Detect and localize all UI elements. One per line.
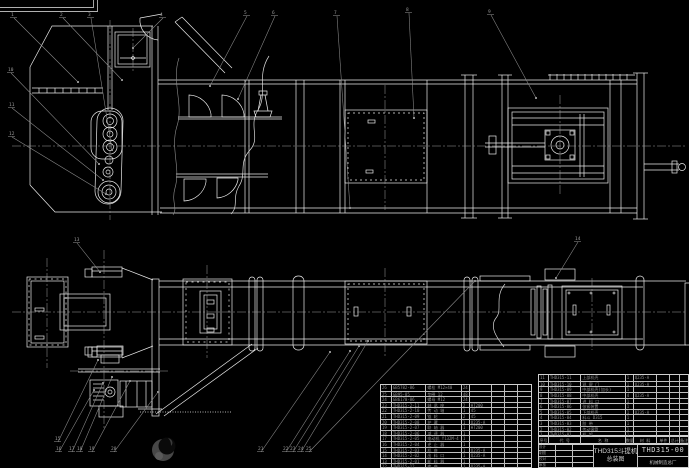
- bom-cell: 1: [462, 420, 470, 425]
- leader-line: [337, 16, 350, 208]
- leader-line: [409, 13, 414, 118]
- leader-line: [114, 392, 158, 452]
- bom-row: 12THD315-12底 座1Q235-A: [381, 463, 531, 468]
- bom-cell: 上部机壳: [581, 375, 625, 381]
- bom-cell: THD315-02: [549, 427, 582, 432]
- bom-cell: 1: [626, 415, 634, 420]
- bom-cell: THD315-07: [549, 399, 582, 404]
- bom-cell: [634, 427, 658, 432]
- bom-row: 22THD315-2-10传 动 轴145: [381, 407, 531, 413]
- bom-cell: [518, 436, 531, 441]
- bom-cell: [680, 415, 688, 420]
- bom-cell: 传 动 轴: [426, 408, 462, 413]
- bom-cell: 1: [462, 442, 470, 447]
- bom-row: 3THD315-03胶 带1: [539, 420, 688, 426]
- bom-cell: [670, 410, 680, 415]
- balloon-number: 25: [306, 446, 312, 452]
- bom-cell: [634, 387, 658, 392]
- bom-cell: [670, 399, 680, 404]
- sign-cell: 审核: [539, 463, 556, 468]
- centerlines: [12, 20, 686, 428]
- bom-cell: 逆 止 器: [426, 442, 462, 447]
- bom-cell: 1: [462, 425, 470, 430]
- bom-cell: 2: [462, 403, 470, 408]
- bom-cell: [505, 453, 518, 458]
- leader-line: [238, 16, 275, 99]
- bom-cell: 卸 料 器: [426, 459, 462, 464]
- bom-cell: [657, 382, 670, 387]
- bom-cell: [518, 453, 531, 458]
- bom-cell: [670, 415, 680, 420]
- bom-cell: 链 轮: [426, 414, 462, 419]
- bom-cell: [505, 431, 518, 436]
- bom-cell: [505, 420, 518, 425]
- bom-cell: [670, 404, 680, 409]
- bom-cell: THD315-2-10: [392, 408, 427, 413]
- bom-cell: 出 料 口: [426, 453, 462, 458]
- bom-cell: [492, 397, 506, 402]
- bom-cell: 19: [381, 425, 392, 430]
- leader-dot: [102, 382, 104, 384]
- bom-cell: [505, 425, 518, 430]
- bom-cell: GB5782-86: [392, 385, 427, 391]
- bom-cell: [492, 425, 506, 430]
- bom-cell: GB6170-86: [392, 397, 427, 402]
- bom-cell: [492, 459, 506, 464]
- bom-cell: 25: [381, 392, 392, 397]
- title-block: 设计制图校对审核 THD315斗提机 总装图 THD315-00 机械制造总厂: [538, 444, 689, 468]
- bom-cell: 2: [539, 427, 549, 432]
- bom-cell: [492, 431, 506, 436]
- balloon-number: 1: [11, 12, 14, 18]
- bom-cell: [518, 408, 531, 413]
- bom-cell: 2: [462, 414, 470, 419]
- leader-dot: [329, 351, 331, 353]
- bom-cell: Q235-A: [470, 453, 492, 458]
- leader-dot: [97, 359, 99, 361]
- bom-cell: 胶 带: [581, 421, 625, 426]
- bom-cell: 1: [626, 387, 634, 392]
- leader-line: [11, 73, 99, 164]
- balloon-number: 16: [56, 446, 62, 452]
- bom-cell: 1: [462, 464, 470, 468]
- bom-cell: [634, 421, 658, 426]
- leader-line: [12, 108, 103, 180]
- sign-cell: [556, 463, 573, 468]
- leader-dot: [349, 207, 351, 209]
- bom-cell: THD315-05: [549, 410, 582, 415]
- bom-row: 20THD315-2-08护 罩1Q235-A: [381, 419, 531, 425]
- bom-cell: THD315-03: [549, 421, 582, 426]
- bom-cell: [657, 399, 670, 404]
- bom-cell: 1: [462, 459, 470, 464]
- balloon-number: 18: [77, 446, 83, 452]
- bom-cell: GB95-85: [392, 392, 427, 397]
- bom-cell: [470, 392, 492, 397]
- bom-cell: THD315-2-01: [392, 459, 427, 464]
- bom-cell: [518, 403, 531, 408]
- leader-dot: [99, 271, 101, 273]
- cad-drawing-page: 1234567891011121314151617181920212223242…: [0, 0, 689, 468]
- bom-row: 10THD315-10观 察 门1Q235-A: [539, 381, 688, 387]
- bom-cell: 传动滚筒: [581, 427, 625, 432]
- bom-cell: Q235-A: [634, 382, 658, 387]
- balloon-number: 17: [69, 446, 75, 452]
- bom-cell: 减 速 器: [426, 431, 462, 436]
- bom-cell: 螺栓 M12×40: [426, 385, 462, 391]
- bom-cell: 16: [381, 442, 392, 447]
- leader-dot: [474, 280, 476, 282]
- bom-cell: 23: [381, 403, 392, 408]
- bom-cell: THD315-06: [549, 404, 582, 409]
- bom-row: 21THD315-2-09链 轮245: [381, 413, 531, 419]
- bom-cell: [505, 385, 518, 391]
- bom-cell: HT200: [470, 425, 492, 430]
- bom-cell: [505, 414, 518, 419]
- bom-cell: 15: [381, 448, 392, 453]
- bom-cell: 7: [539, 399, 549, 404]
- bom-cell: 18: [381, 431, 392, 436]
- bom-cell: THD315-2-03: [392, 448, 427, 453]
- bom-row: 6THD315-06张紧装置1: [539, 403, 688, 409]
- bom-cell: [492, 464, 506, 468]
- bom-cell: [492, 392, 506, 397]
- drawing-number: THD315-00: [638, 445, 688, 457]
- bom-cell: 料斗 D315: [581, 415, 625, 420]
- leader-dot: [535, 97, 537, 99]
- bom-cell: 10: [539, 382, 549, 387]
- bom-cell: 20: [381, 420, 392, 425]
- bom-cell: 螺母 M12: [426, 397, 462, 402]
- side-hatch: [345, 110, 427, 183]
- bom-cell: [518, 392, 531, 397]
- bom-cell: [470, 431, 492, 436]
- bom-cell: 14: [381, 453, 392, 458]
- bom-cell: 观 察 门: [581, 382, 625, 387]
- bom-cell: [505, 392, 518, 397]
- side-view: [0, 0, 686, 219]
- bom-cell: [492, 414, 506, 419]
- balloon-number: 10: [8, 67, 14, 73]
- leader-dot: [413, 117, 415, 119]
- leader-dot: [349, 350, 351, 352]
- bom-row: 19THD315-2-07联 轴 器1HT200: [381, 424, 531, 430]
- balloon-number: 4: [160, 12, 163, 18]
- leader-line: [77, 243, 100, 272]
- bom-cell: 3: [539, 421, 549, 426]
- bom-cell: [470, 397, 492, 402]
- bom-cell: THD315-2-07: [392, 425, 427, 430]
- bom-table-left: 26GB5782-86螺栓 M12×402425GB95-85垫圈 124824…: [380, 384, 532, 468]
- bom-cell: 12: [381, 464, 392, 468]
- plan-bellows: [480, 269, 575, 357]
- bom-cell: 24: [462, 385, 470, 391]
- bom-cell: [657, 410, 670, 415]
- leader-line: [14, 18, 78, 82]
- balloon-number: 5: [244, 10, 247, 16]
- balloon-number: 13: [74, 237, 80, 243]
- bom-cell: 进 料 口: [581, 399, 625, 404]
- bom-row: 17THD315-2-05电动机 Y132M-41: [381, 435, 531, 441]
- bom-cell: THD315-09: [549, 387, 582, 392]
- product-title: THD315斗提机: [594, 448, 637, 456]
- bom-cell: Q235-A: [470, 420, 492, 425]
- leader-line: [12, 137, 106, 194]
- bom-cell: 1: [462, 453, 470, 458]
- bom-cell: Q235-A: [634, 375, 658, 381]
- leader-line: [293, 346, 359, 452]
- bom-cell: 11: [539, 375, 549, 381]
- bom-cell: 轴 承 座: [426, 403, 462, 408]
- sheet-name: 总装图: [606, 456, 624, 464]
- bom-cell: 下部机壳: [581, 410, 625, 415]
- leader-dot: [237, 98, 239, 100]
- bom-row: 11THD315-11上部机壳1Q235-A: [539, 375, 688, 381]
- balloon-number: 22: [283, 446, 289, 452]
- bom-cell: 电动机 Y132M-4: [426, 436, 462, 441]
- bom-cell: [657, 393, 670, 398]
- balloon-number: 6: [272, 10, 275, 16]
- bom-cell: [492, 448, 506, 453]
- balloon-number: 7: [334, 10, 337, 16]
- bom-cell: THD315-12: [392, 464, 427, 468]
- bom-cell: 1: [626, 399, 634, 404]
- bom-cell: 1: [462, 408, 470, 413]
- inspection-door: [115, 32, 150, 67]
- bom-cell: 中部机壳(加长): [581, 387, 625, 392]
- signature-grid: 设计制图校对审核: [539, 445, 594, 467]
- bom-row: 9THD315-09中部机壳(加长)1: [539, 386, 688, 392]
- leader-line: [301, 341, 368, 452]
- bom-cell: Q235-A: [470, 448, 492, 453]
- bom-cell: 机 座: [426, 448, 462, 453]
- bom-cell: THD315-10: [549, 382, 582, 387]
- bom-cell: [670, 421, 680, 426]
- bom-cell: Q235-A: [634, 393, 658, 398]
- bom-cell: [505, 436, 518, 441]
- bom-cell: 垫圈 12: [426, 392, 462, 397]
- bom-cell: THD315-2-02: [392, 453, 427, 458]
- bom-cell: [470, 385, 492, 391]
- bom-cell: 5: [539, 410, 549, 415]
- bom-cell: THD315-2-11: [392, 403, 427, 408]
- bom-cell: 1: [462, 431, 470, 436]
- bom-cell: [518, 431, 531, 436]
- balloon-number: 8: [406, 7, 409, 13]
- bom-cell: [680, 421, 688, 426]
- bom-cell: 24: [381, 397, 392, 402]
- leader-dot: [93, 389, 95, 391]
- bom-cell: [518, 459, 531, 464]
- balloon-number: 19: [89, 446, 95, 452]
- bom-row: 18THD315-2-06减 速 器1: [381, 430, 531, 436]
- bom-cell: [518, 442, 531, 447]
- bom-cell: 24: [462, 397, 470, 402]
- bom-cell: 1: [626, 427, 634, 432]
- bom-cell: HT200: [470, 403, 492, 408]
- bom-cell: [680, 387, 688, 392]
- bom-cell: [505, 448, 518, 453]
- leader-dot: [157, 391, 159, 393]
- bom-row: 5THD315-05下部机壳1Q235-A: [539, 409, 688, 415]
- bom-cell: [680, 410, 688, 415]
- bom-row: 23THD315-2-11轴 承 座2HT200: [381, 402, 531, 408]
- bom-cell: [492, 408, 506, 413]
- bom-row: 4THD315-04料斗 D3151: [539, 414, 688, 420]
- balloon-number: 9: [488, 9, 491, 15]
- bom-cell: 中部机壳: [581, 393, 625, 398]
- bom-cell: 6: [539, 404, 549, 409]
- bom-cell: [518, 425, 531, 430]
- bom-cell: [492, 436, 506, 441]
- bom-cell: 1: [626, 404, 634, 409]
- leader-dot: [209, 85, 211, 87]
- bom-cell: THD315-2-05: [392, 436, 427, 441]
- bom-row: 13THD315-2-01卸 料 器1: [381, 458, 531, 464]
- bom-cell: [670, 375, 680, 381]
- bom-cell: [518, 448, 531, 453]
- leader-dot: [358, 345, 360, 347]
- title-right: THD315-00 机械制造总厂: [638, 445, 688, 467]
- leader-dot: [102, 179, 104, 181]
- bom-cell: 联 轴 器: [426, 425, 462, 430]
- bom-cell: [670, 387, 680, 392]
- bom-cell: [657, 404, 670, 409]
- bom-cell: [470, 459, 492, 464]
- bom-cell: 1: [462, 436, 470, 441]
- bom-cell: 21: [381, 414, 392, 419]
- bom-row: 26GB5782-86螺栓 M12×4024: [381, 385, 531, 391]
- title-main: THD315斗提机 总装图: [594, 445, 638, 467]
- leader-dot: [98, 163, 100, 165]
- bom-cell: [634, 404, 658, 409]
- watermark-blob: [152, 438, 176, 462]
- leader-dot: [77, 81, 79, 83]
- bom-cell: [680, 375, 688, 381]
- bom-cell: [518, 420, 531, 425]
- chain-drive: [91, 108, 123, 204]
- leader-dot: [105, 193, 107, 195]
- bom-cell: THD315-11: [549, 375, 582, 381]
- bom-cell: THD315-2-06: [392, 431, 427, 436]
- bom-cell: 张紧装置: [581, 404, 625, 409]
- bom-cell: [505, 459, 518, 464]
- plan-hatch: [345, 281, 427, 344]
- leader-dot: [132, 47, 134, 49]
- bom-cell: 4: [539, 415, 549, 420]
- leader-line: [91, 18, 112, 150]
- leader-line: [72, 383, 103, 452]
- bom-cell: [492, 403, 506, 408]
- bom-cell: Q235-A: [470, 464, 492, 468]
- leader-dot: [111, 376, 113, 378]
- drive-assembly: [78, 346, 232, 417]
- bom-cell: 1: [626, 382, 634, 387]
- bom-row: 25GB95-85垫圈 1248: [381, 391, 531, 397]
- bom-cell: [505, 442, 518, 447]
- bom-row: 2THD315-02传动滚筒1: [539, 426, 688, 432]
- bom-cell: 45: [470, 408, 492, 413]
- balloon-number: 23: [290, 446, 296, 452]
- balloon-number: 24: [298, 446, 304, 452]
- balloon-number: 2: [60, 12, 63, 18]
- bom-cell: 1: [626, 410, 634, 415]
- bom-cell: [657, 375, 670, 381]
- bom-cell: THD315-2-08: [392, 420, 427, 425]
- bom-row: 15THD315-2-03机 座1Q235-A: [381, 447, 531, 453]
- bom-cell: 9: [539, 387, 549, 392]
- bom-cell: Q235-A: [634, 410, 658, 415]
- bom-row: 7THD315-07进 料 口1: [539, 398, 688, 404]
- bom-cell: [680, 404, 688, 409]
- bom-table-right: 11THD315-11上部机壳1Q235-A10THD315-10观 察 门1Q…: [538, 374, 689, 436]
- bom-cell: [670, 382, 680, 387]
- leader-dot: [555, 277, 557, 279]
- bom-cell: [492, 420, 506, 425]
- bom-row: 8THD315-08中部机壳4Q235-A: [539, 392, 688, 398]
- leader-dot: [367, 340, 369, 342]
- bom-cell: [518, 414, 531, 419]
- bom-header-row: 序号代 号名 称数量材 料单件总计备注: [538, 436, 689, 444]
- balloon-number: 11: [9, 102, 15, 108]
- bom-cell: 8: [539, 393, 549, 398]
- break-line: [173, 58, 179, 215]
- balloon-number: 20: [111, 446, 117, 452]
- bom-row: 24GB6170-86螺母 M1224: [381, 396, 531, 402]
- bom-cell: 22: [381, 408, 392, 413]
- balloon-number: 12: [9, 131, 15, 137]
- bom-cell: [680, 382, 688, 387]
- bom-cell: [492, 453, 506, 458]
- bom-cell: 48: [462, 392, 470, 397]
- bom-cell: [680, 427, 688, 432]
- bom-cell: 1: [626, 421, 634, 426]
- boot-takeup: [485, 74, 686, 183]
- balloon-number: 3: [88, 12, 91, 18]
- bom-cell: [634, 399, 658, 404]
- balloon-number: 14: [575, 236, 581, 242]
- leader-line: [133, 18, 163, 48]
- bom-cell: [657, 415, 670, 420]
- bom-cell: THD315-08: [549, 393, 582, 398]
- bom-cell: [470, 436, 492, 441]
- bom-cell: 17: [381, 436, 392, 441]
- bom-cell: [670, 427, 680, 432]
- bom-cell: [492, 442, 506, 447]
- bom-cell: 13: [381, 459, 392, 464]
- balloon-number: 21: [258, 446, 264, 452]
- bom-cell: [505, 397, 518, 402]
- bom-cell: 26: [381, 385, 392, 391]
- company-name: 机械制造总厂: [638, 457, 688, 467]
- leader-line: [491, 15, 536, 98]
- bom-cell: THD315-2-09: [392, 414, 427, 419]
- bom-cell: [680, 393, 688, 398]
- bom-cell: 1: [626, 375, 634, 381]
- bom-cell: 45: [470, 414, 492, 419]
- bom-cell: [657, 421, 670, 426]
- leader-dot: [121, 79, 123, 81]
- bom-cell: 4: [626, 393, 634, 398]
- bom-cell: [470, 442, 492, 447]
- bom-cell: THD315-04: [549, 415, 582, 420]
- bom-cell: [657, 387, 670, 392]
- balloon-number: 15: [55, 436, 61, 442]
- bom-cell: [657, 427, 670, 432]
- leader-dot: [129, 380, 131, 382]
- bom-cell: 护 罩: [426, 420, 462, 425]
- border-fragment: [0, 0, 98, 12]
